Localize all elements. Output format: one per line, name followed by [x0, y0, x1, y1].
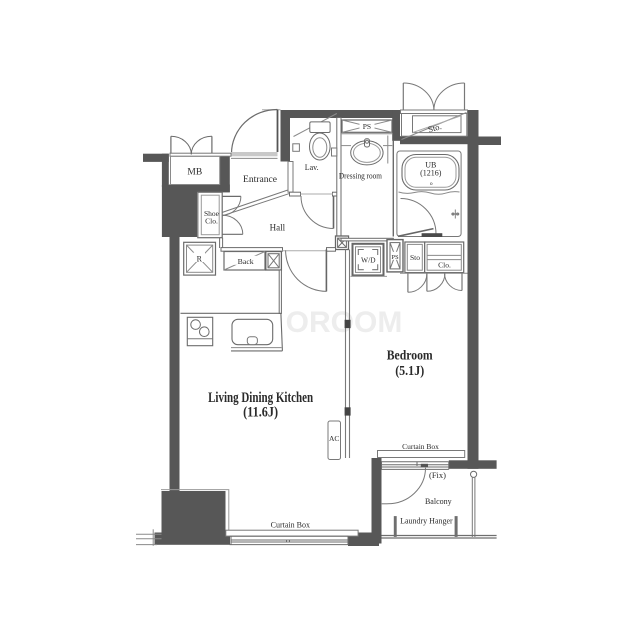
svg-text:Laundry Hanger: Laundry Hanger	[400, 517, 453, 526]
svg-text:PS: PS	[391, 254, 399, 261]
svg-text:Back: Back	[238, 257, 254, 266]
svg-text:Balcony: Balcony	[425, 497, 452, 506]
svg-text:AC: AC	[329, 434, 339, 443]
svg-text:MB: MB	[187, 167, 202, 177]
svg-text:Sto: Sto	[410, 253, 420, 262]
svg-text:Dressing room: Dressing room	[339, 172, 383, 181]
svg-text:W/D: W/D	[361, 256, 376, 265]
svg-text:Entrance: Entrance	[243, 175, 277, 185]
svg-text:o: o	[430, 181, 433, 187]
svg-text:Lav.: Lav.	[305, 163, 319, 172]
svg-text:(5.1J): (5.1J)	[395, 364, 424, 379]
svg-text:R: R	[197, 254, 203, 263]
svg-text:Clo.: Clo.	[205, 217, 218, 226]
svg-text:Hall: Hall	[270, 222, 286, 232]
svg-text:OROOM: OROOM	[286, 306, 403, 339]
svg-text:PS: PS	[363, 122, 371, 131]
svg-text:(11.6J): (11.6J)	[243, 404, 278, 420]
svg-text:Curtain Box: Curtain Box	[402, 442, 439, 451]
svg-text:(Fix): (Fix)	[429, 470, 446, 480]
svg-text:Bedroom: Bedroom	[387, 348, 433, 363]
svg-text:Curtain Box: Curtain Box	[271, 521, 310, 530]
svg-text:Clo.: Clo.	[438, 260, 451, 269]
svg-text:(1216): (1216)	[420, 168, 442, 177]
svg-text:Living Dining Kitchen: Living Dining Kitchen	[208, 390, 313, 406]
